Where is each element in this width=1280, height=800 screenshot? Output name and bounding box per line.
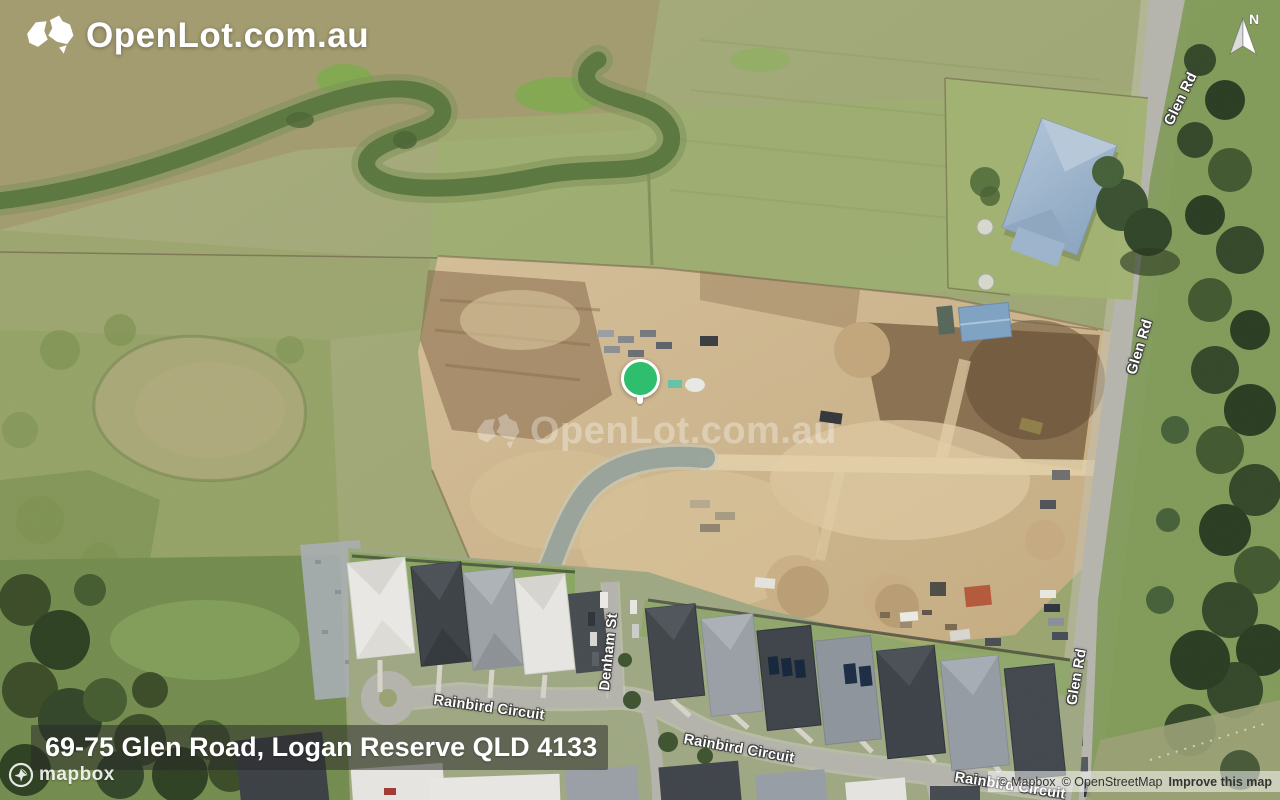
attribution-bar: © Mapbox © OpenStreetMap Improve this ma… <box>988 771 1280 792</box>
compass-north-letter: N <box>1249 11 1259 27</box>
mapbox-attribution-link[interactable]: © Mapbox <box>998 775 1055 789</box>
address-text: 69-75 Glen Road, Logan Reserve QLD 4133 <box>45 732 597 763</box>
address-bar: 69-75 Glen Road, Logan Reserve QLD 4133 <box>31 725 608 770</box>
australia-icon <box>26 15 74 56</box>
openlot-logo: OpenLot.com.au <box>26 15 369 56</box>
pin-head <box>621 359 660 398</box>
mapbox-logo[interactable]: mapbox <box>8 762 115 788</box>
watermark-text: OpenLot.com.au <box>530 410 837 453</box>
location-pin[interactable] <box>621 359 659 403</box>
satellite-map-view[interactable]: Glen Rd Glen Rd Glen Rd Denham St Rainbi… <box>0 0 1280 800</box>
openlot-watermark: OpenLot.com.au <box>476 410 837 453</box>
improve-map-link[interactable]: Improve this map <box>1169 775 1273 789</box>
pin-stem <box>637 395 643 404</box>
osm-attribution-link[interactable]: © OpenStreetMap <box>1062 775 1163 789</box>
mapbox-icon <box>8 762 34 788</box>
australia-icon <box>476 413 520 451</box>
mapbox-wordmark: mapbox <box>39 764 115 786</box>
north-compass-icon: N <box>1222 10 1266 60</box>
logo-text: OpenLot.com.au <box>86 16 369 56</box>
